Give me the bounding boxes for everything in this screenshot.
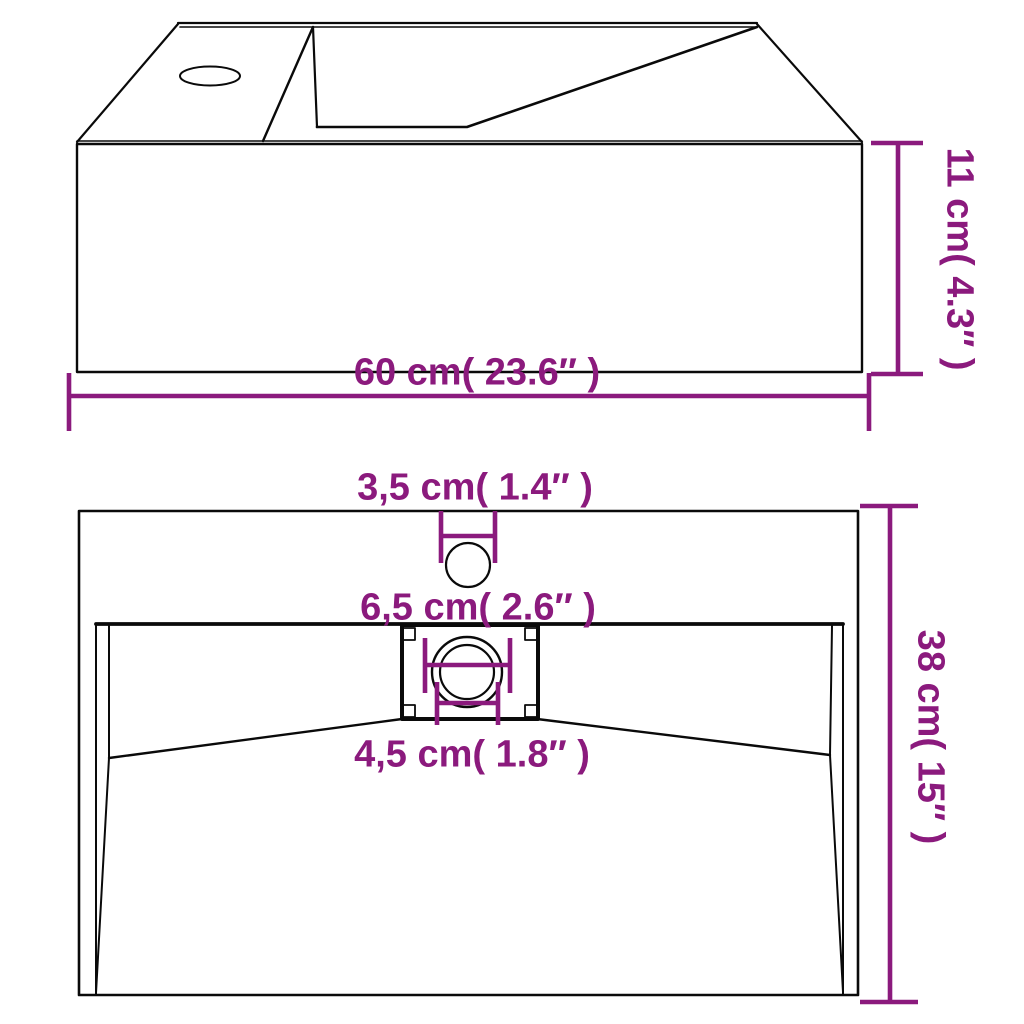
basin-left-wall <box>96 624 402 994</box>
faucet-hole-circle <box>446 543 490 587</box>
label-depth-38cm: 38 cm( 15″ ) <box>909 630 952 845</box>
dimension-diagram: 60 cm( 23.6″ ) 11 cm( 4.3″ ) 3,5 cm( 1.4… <box>0 0 1024 1024</box>
basin-recess-edges <box>263 27 757 141</box>
label-faucet-hole-3-5cm: 3,5 cm( 1.4″ ) <box>357 467 593 510</box>
label-height-11cm: 11 cm( 4.3″ ) <box>938 147 981 370</box>
sink-technical-drawing <box>0 0 1024 1024</box>
sink-top-face <box>77 23 862 142</box>
dimension-11cm <box>871 143 923 374</box>
drain-circles <box>432 637 502 707</box>
label-drain-recess-6-5cm: 6,5 cm( 2.6″ ) <box>360 587 596 630</box>
basin-right-wall <box>537 624 843 994</box>
faucet-hole-ellipse <box>180 67 240 86</box>
label-width-60cm: 60 cm( 23.6″ ) <box>354 352 600 395</box>
sink-front-face <box>77 141 862 372</box>
label-drain-hole-4-5cm: 4,5 cm( 1.8″ ) <box>354 734 590 777</box>
